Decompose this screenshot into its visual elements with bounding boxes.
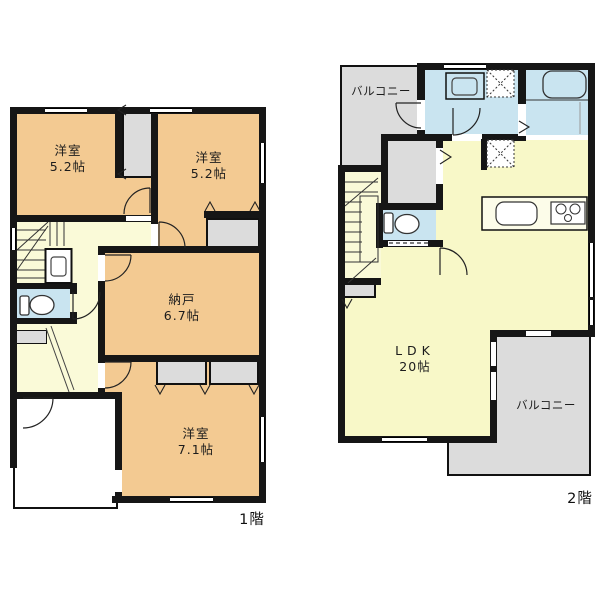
door-opening	[436, 148, 443, 184]
wall	[70, 283, 77, 294]
label-bedroom-bottom: 洋室 7.1帖	[156, 426, 236, 459]
label-balcony-top: バルコニー	[339, 84, 423, 99]
wall	[10, 283, 77, 289]
room-name: 洋室	[169, 150, 249, 166]
wall	[338, 278, 381, 285]
room-bedroom-tl-vestibule	[119, 178, 153, 216]
balcony-bottom-extension	[447, 441, 495, 476]
toilet-room-1f	[17, 289, 70, 318]
room-bedroom-tr-nook	[158, 219, 206, 248]
label-ldk: LDK 20帖	[373, 343, 457, 376]
room-name: 洋室	[28, 143, 108, 159]
label-storage: 納戸 6.7帖	[142, 292, 222, 325]
wall	[338, 165, 387, 172]
room-name: 洋室	[156, 426, 236, 442]
bathroom	[526, 68, 588, 135]
window	[526, 331, 551, 336]
door-opening	[98, 363, 105, 388]
window	[589, 243, 594, 297]
room-size: 6.7帖	[142, 308, 222, 324]
wall	[151, 107, 158, 224]
window	[589, 300, 594, 325]
hall-2f	[388, 140, 436, 203]
wall	[338, 165, 345, 443]
label-balcony-bottom: バルコニー	[503, 398, 589, 413]
wall	[381, 203, 441, 210]
wall	[98, 246, 266, 253]
floor-caption-text: 1階	[239, 512, 265, 528]
door-opening	[417, 100, 425, 130]
toilet-room-2f	[382, 210, 436, 241]
label-bedroom-tr: 洋室 5.2帖	[169, 150, 249, 183]
washroom	[423, 68, 518, 135]
window	[11, 228, 16, 250]
room-size: 20帖	[373, 359, 457, 375]
closet-bottom-2	[209, 360, 259, 385]
window	[382, 437, 427, 442]
room-size: 5.2帖	[169, 166, 249, 182]
hall-corridor	[17, 219, 158, 248]
door-opening	[388, 241, 428, 246]
room-name: バルコニー	[503, 398, 589, 413]
wall	[204, 211, 266, 218]
wall	[115, 107, 122, 178]
window	[260, 143, 265, 183]
closet-bedroom-tr	[206, 218, 260, 248]
window	[260, 417, 265, 462]
window	[170, 497, 213, 502]
room-size: 7.1帖	[156, 442, 236, 458]
window	[150, 108, 192, 113]
door-opening	[115, 470, 122, 492]
window	[444, 64, 486, 69]
wall	[10, 318, 77, 324]
wall	[481, 139, 487, 170]
wall	[10, 392, 122, 399]
entrance-genkan	[13, 397, 118, 509]
caption-floor1: 1階	[230, 508, 274, 529]
window	[45, 108, 87, 113]
window	[491, 372, 496, 400]
closet-bottom-1	[156, 360, 207, 385]
wall	[98, 355, 266, 362]
door-opening	[518, 104, 526, 136]
label-bedroom-tl: 洋室 5.2帖	[28, 143, 108, 176]
room-name: 納戸	[142, 292, 222, 308]
wall	[381, 134, 388, 210]
closet-bedroom-tl	[122, 110, 153, 178]
room-name: バルコニー	[339, 84, 423, 99]
door-opening	[452, 134, 482, 141]
shoe-cabinet	[12, 330, 47, 344]
room-size: 5.2帖	[28, 159, 108, 175]
caption-floor2: 2階	[558, 487, 600, 508]
wall	[70, 312, 77, 324]
door-opening	[126, 216, 152, 221]
door-opening	[98, 255, 105, 281]
door-opening	[151, 224, 158, 246]
floor-caption-text: 2階	[567, 491, 593, 507]
window	[491, 342, 496, 366]
floorplan-canvas: 洋室 5.2帖 洋室 5.2帖 納戸 6.7帖 洋室 7.1帖 バルコニー LD…	[0, 0, 600, 599]
room-name: LDK	[373, 343, 457, 359]
